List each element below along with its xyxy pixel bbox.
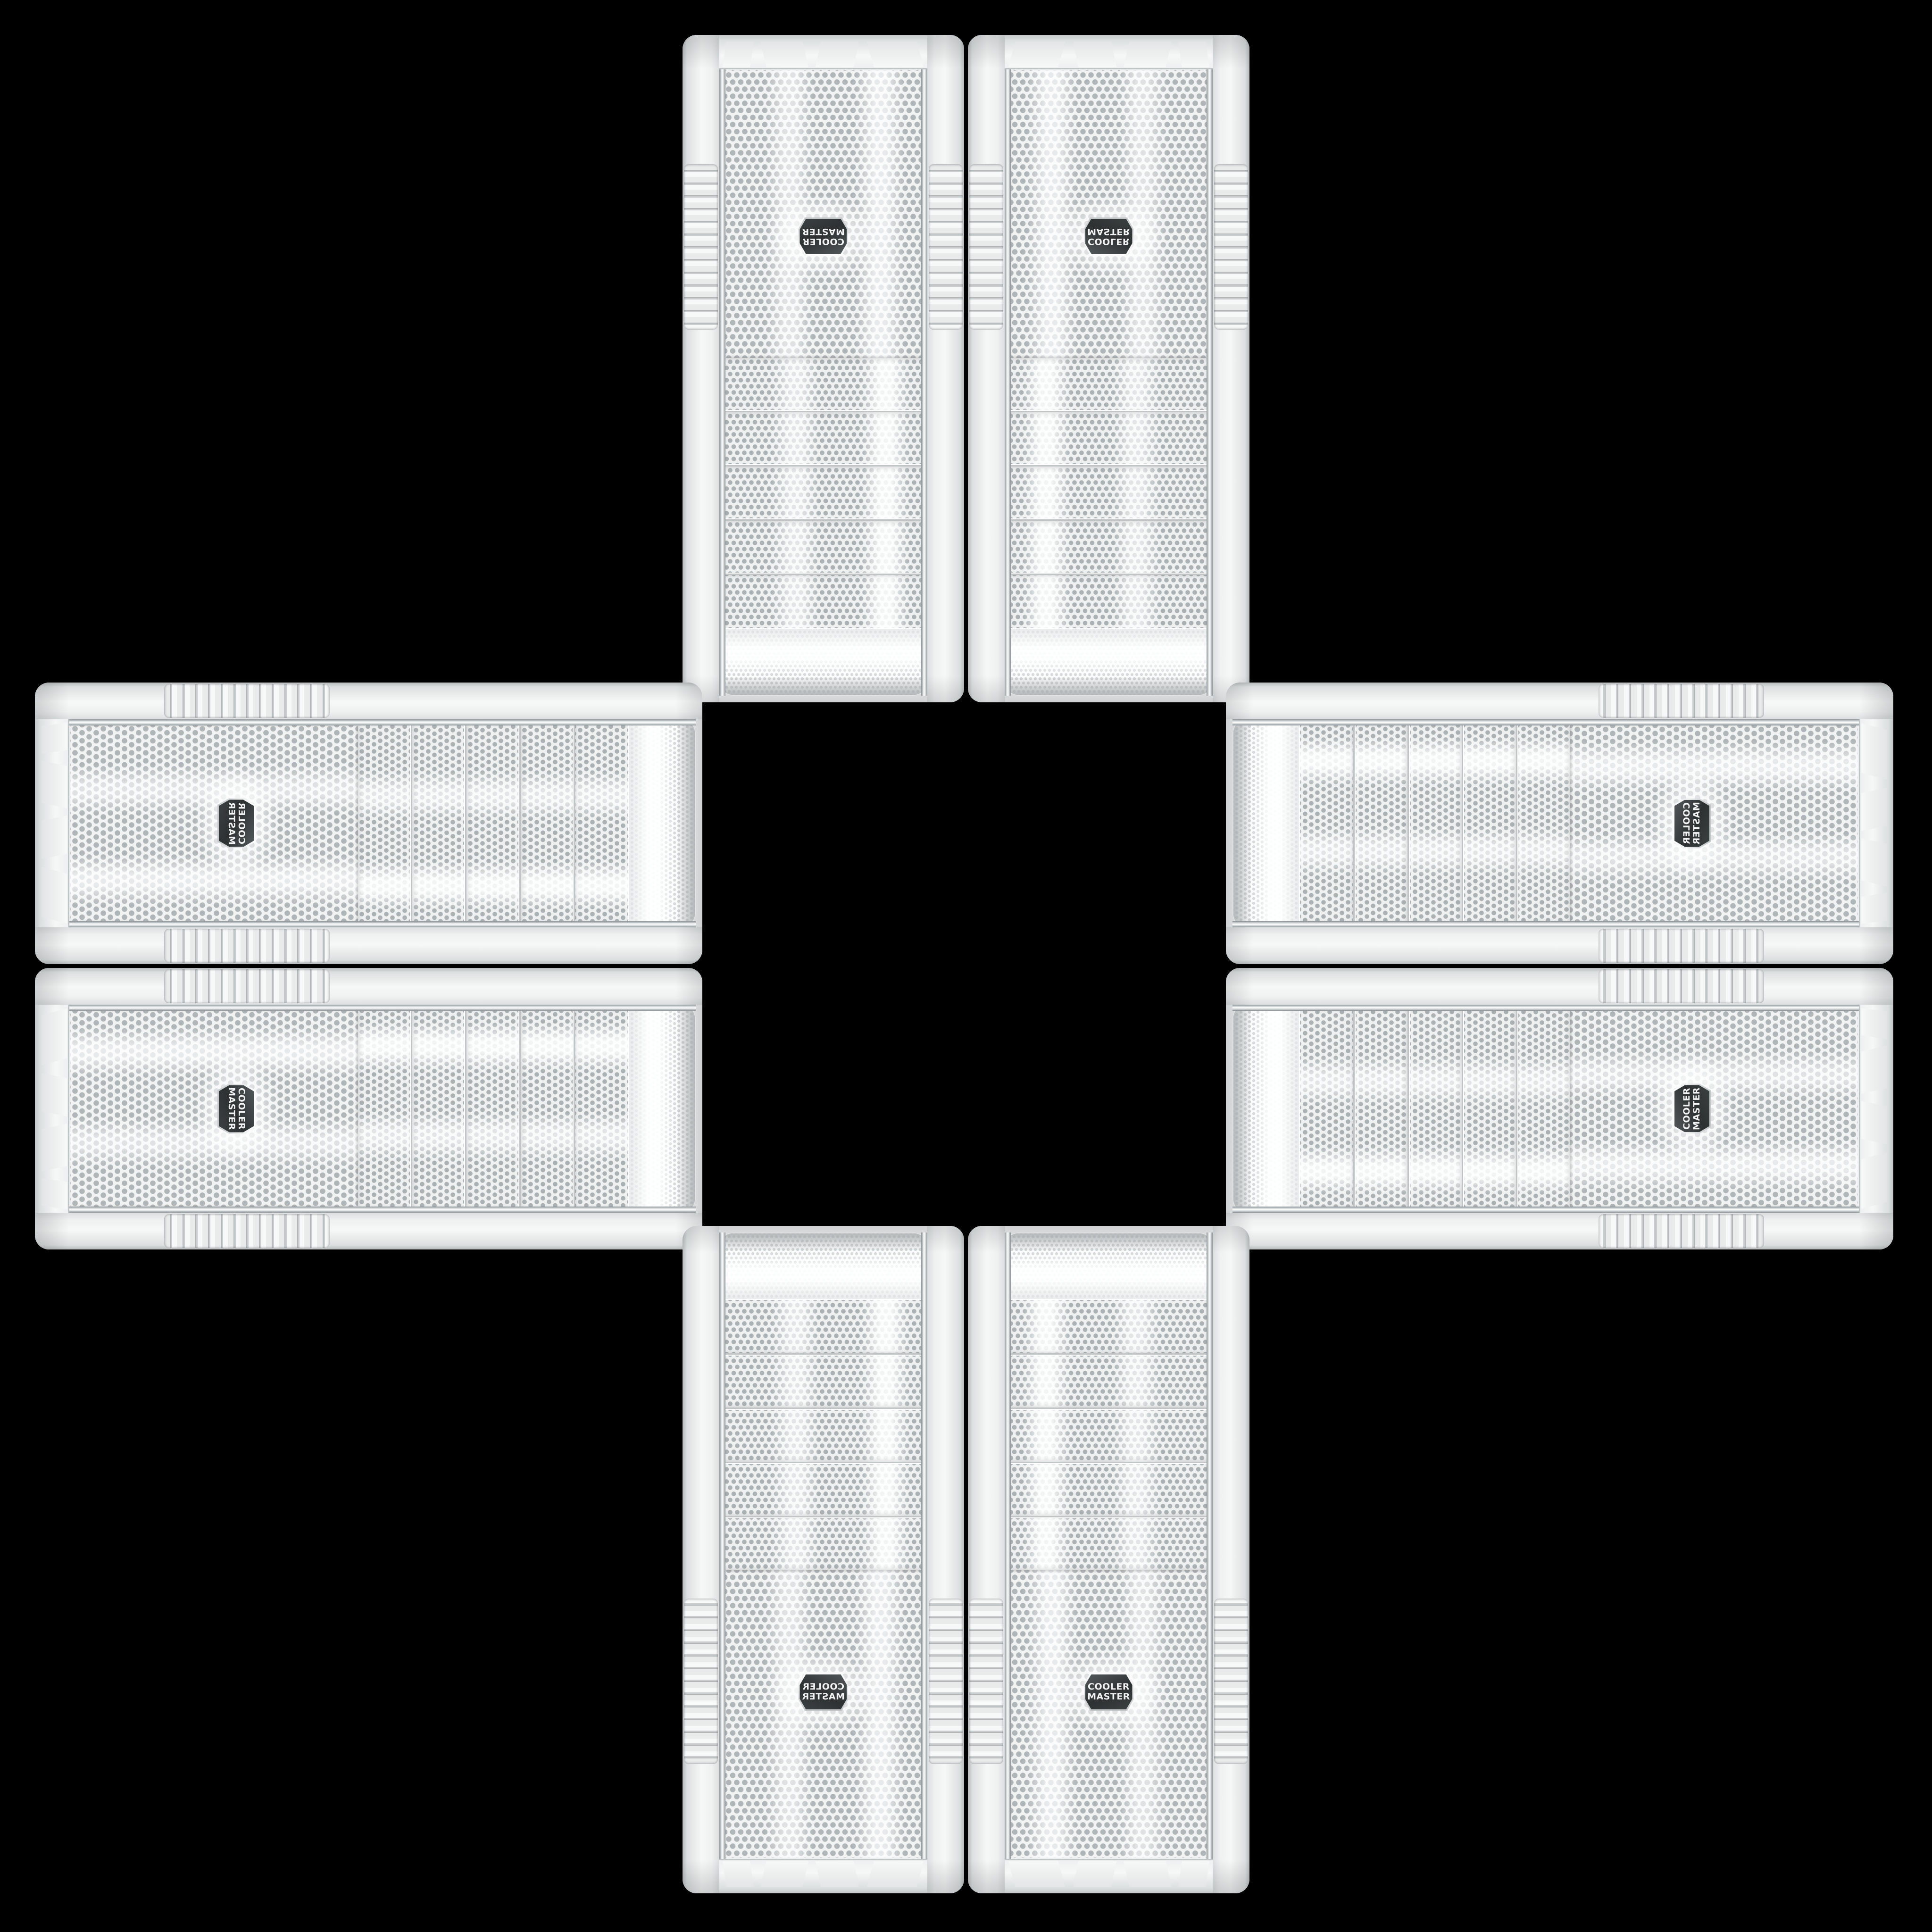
drive-bay-stack xyxy=(1299,1011,1570,1207)
grip-ribs xyxy=(1599,969,1764,1003)
drive-bay-cover xyxy=(466,725,521,921)
grip-ribs xyxy=(929,164,963,330)
pc-case-top-left: COOLER MASTER xyxy=(683,35,964,702)
grip-ribs xyxy=(684,1599,718,1764)
drive-bay-cover xyxy=(466,1011,521,1207)
chrome-trim-left xyxy=(69,921,696,927)
trim-facet xyxy=(42,867,67,924)
trim-facet xyxy=(1073,1861,1116,1887)
drive-bay-cover xyxy=(1011,575,1207,629)
trim-facet xyxy=(42,1124,67,1172)
trim-facet xyxy=(1861,723,1887,780)
cooler-master-logo-icon: COOLER MASTER xyxy=(799,1673,849,1711)
trim-facet xyxy=(723,42,754,67)
drive-bay-cover xyxy=(725,1462,921,1516)
drive-bay-cover xyxy=(1299,1011,1353,1207)
cooler-master-logo-icon: COOLER MASTER xyxy=(1673,1084,1711,1134)
drive-bay-cover xyxy=(358,1011,412,1207)
right-rail xyxy=(1226,968,1893,1005)
trim-facet xyxy=(867,42,924,67)
bottom-trim-bar xyxy=(1005,1859,1213,1893)
trim-facet xyxy=(1073,42,1116,67)
pc-case-right-lower: COOLER MASTER xyxy=(1226,968,1893,1249)
chrome-trim-right xyxy=(719,69,725,696)
trim-facet xyxy=(1861,1008,1887,1039)
right-rail xyxy=(1213,35,1249,702)
drive-bay-stack xyxy=(1011,1299,1207,1570)
bottom-trim-bar xyxy=(719,35,927,69)
left-rail xyxy=(35,968,702,1005)
cooler-master-logo-icon: COOLER MASTER xyxy=(799,217,849,255)
trim-facet xyxy=(42,723,67,754)
chrome-trim-left xyxy=(69,1005,696,1011)
front-intake-mesh: COOLER MASTER xyxy=(725,70,921,358)
drive-bay-cover xyxy=(1407,725,1462,921)
pc-case-left-upper: COOLER MASTER xyxy=(35,683,702,964)
logo-plate: COOLER MASTER xyxy=(1674,1085,1709,1133)
drive-bay-stack xyxy=(358,725,629,921)
top-vent-bezel xyxy=(1232,722,1299,925)
logo-text-line2: MASTER xyxy=(226,802,236,845)
drive-bay-cover xyxy=(1011,1407,1207,1462)
logo-text-line2: MASTER xyxy=(226,1087,236,1130)
top-vent-bezel xyxy=(1007,629,1210,696)
top-vent-bezel xyxy=(722,629,925,696)
logo-plate: COOLER MASTER xyxy=(800,219,847,254)
logo-plate: COOLER MASTER xyxy=(1085,219,1133,254)
trim-facet xyxy=(867,1861,924,1887)
front-panel: COOLER MASTER xyxy=(35,719,702,927)
drive-bay-cover xyxy=(1462,725,1516,921)
pc-case-bottom-left: COOLER MASTER xyxy=(683,1226,964,1893)
front-panel: COOLER MASTER xyxy=(35,1005,702,1213)
grip-ribs xyxy=(969,1599,1003,1764)
top-vent-bezel xyxy=(629,1007,696,1210)
grip-ribs xyxy=(684,164,718,330)
drive-bay-cover xyxy=(725,575,921,629)
drive-bay-cover xyxy=(725,1353,921,1407)
drive-bay-cover xyxy=(1011,1299,1207,1353)
left-rail xyxy=(1226,1213,1893,1249)
pc-case-left-lower: COOLER MASTER xyxy=(35,968,702,1249)
trim-facet xyxy=(1861,893,1887,924)
logo-plate: COOLER MASTER xyxy=(800,1674,847,1709)
logo-text-line1: COOLER xyxy=(236,802,246,844)
trim-facet xyxy=(1861,788,1887,831)
drive-bay-cover xyxy=(1516,725,1570,921)
pc-case-bottom-right: COOLER MASTER xyxy=(968,1226,1249,1893)
drive-bay-cover xyxy=(412,725,466,921)
cooler-master-logo-icon: COOLER MASTER xyxy=(1084,1673,1134,1711)
bottom-trim-bar xyxy=(719,1859,927,1893)
top-vent-bezel xyxy=(1007,1232,1210,1299)
pc-case-top-right: COOLER MASTER xyxy=(968,35,1249,702)
left-rail xyxy=(1226,683,1893,719)
drive-bay-cover xyxy=(725,1516,921,1570)
drive-bay-stack xyxy=(725,1299,921,1570)
right-rail xyxy=(1213,1226,1249,1893)
grip-ribs xyxy=(1599,1214,1764,1248)
chrome-trim-right xyxy=(69,719,696,725)
front-intake-mesh: COOLER MASTER xyxy=(1011,70,1207,358)
drive-bay-cover xyxy=(1011,521,1207,575)
chrome-trim-left xyxy=(921,69,927,696)
grip-ribs xyxy=(929,1599,963,1764)
drive-bay-cover xyxy=(1353,1011,1407,1207)
grip-ribs xyxy=(1599,929,1764,963)
bottom-trim-bar xyxy=(35,719,69,927)
drive-bay-cover xyxy=(1011,466,1207,521)
front-panel: COOLER MASTER xyxy=(1226,1005,1893,1213)
cooler-master-logo-icon: COOLER MASTER xyxy=(217,799,255,849)
cooler-master-logo-icon: COOLER MASTER xyxy=(1673,799,1711,849)
logo-text-line1: COOLER xyxy=(1088,236,1130,246)
top-vent-bezel xyxy=(629,722,696,925)
chrome-trim-right xyxy=(1232,1005,1859,1011)
bottom-trim-bar xyxy=(35,1005,69,1213)
bottom-trim-bar xyxy=(1005,35,1213,69)
chrome-trim-right xyxy=(1207,1232,1213,1859)
trim-facet xyxy=(816,1861,859,1887)
front-intake-mesh: COOLER MASTER xyxy=(1011,1570,1207,1858)
front-intake-mesh: COOLER MASTER xyxy=(1570,1011,1858,1207)
trim-facet xyxy=(42,1008,67,1065)
logo-text-line2: MASTER xyxy=(1692,1087,1702,1130)
trim-facet xyxy=(1861,838,1887,886)
right-rail xyxy=(683,35,719,702)
logo-plate: COOLER MASTER xyxy=(1674,800,1709,847)
drive-bay-cover xyxy=(1407,1011,1462,1207)
logo-text-line1: COOLER xyxy=(1682,802,1692,844)
front-intake-mesh: COOLER MASTER xyxy=(70,725,358,921)
trim-facet xyxy=(1178,42,1209,67)
chrome-trim-left xyxy=(1232,719,1859,725)
trim-facet xyxy=(1861,1046,1887,1094)
logo-plate: COOLER MASTER xyxy=(1085,1674,1133,1709)
chrome-trim-right xyxy=(1232,921,1859,927)
cooler-master-logo-icon: COOLER MASTER xyxy=(217,1084,255,1134)
trim-facet xyxy=(1124,1861,1172,1887)
left-rail xyxy=(968,35,1005,702)
drive-bay-cover xyxy=(1462,1011,1516,1207)
grip-ribs xyxy=(1214,1599,1248,1764)
right-rail xyxy=(683,1226,719,1893)
chrome-trim-right xyxy=(719,1232,725,1859)
left-rail xyxy=(968,1226,1005,1893)
logo-plate: COOLER MASTER xyxy=(219,1085,254,1133)
grip-ribs xyxy=(1599,684,1764,718)
drive-bay-cover xyxy=(358,725,412,921)
trim-facet xyxy=(1178,1861,1209,1887)
left-rail xyxy=(927,35,964,702)
trim-facet xyxy=(1008,42,1065,67)
front-panel: COOLER MASTER xyxy=(719,35,927,702)
front-panel: COOLER MASTER xyxy=(1005,35,1213,702)
drive-bay-cover xyxy=(1011,1353,1207,1407)
chrome-trim-left xyxy=(1005,1232,1011,1859)
front-panel: COOLER MASTER xyxy=(1226,719,1893,927)
drive-bay-cover xyxy=(1299,725,1353,921)
logo-text-line1: COOLER xyxy=(236,1088,246,1130)
front-intake-mesh: COOLER MASTER xyxy=(725,1570,921,1858)
drive-bay-cover xyxy=(1353,725,1407,921)
grip-ribs xyxy=(969,164,1003,330)
trim-facet xyxy=(760,1861,808,1887)
drive-bay-cover xyxy=(521,1011,575,1207)
grip-ribs xyxy=(164,969,330,1003)
front-panel: COOLER MASTER xyxy=(1005,1226,1213,1893)
trim-facet xyxy=(816,42,859,67)
drive-bay-cover xyxy=(1011,412,1207,466)
front-intake-mesh: COOLER MASTER xyxy=(1570,725,1858,921)
trim-facet xyxy=(1861,1152,1887,1209)
trim-facet xyxy=(1861,1101,1887,1144)
drive-bay-stack xyxy=(358,1011,629,1207)
trim-facet xyxy=(1124,42,1172,67)
cooler-master-logo-icon: COOLER MASTER xyxy=(1084,217,1134,255)
logo-text-line1: COOLER xyxy=(802,236,844,246)
collage-canvas: COOLER MASTER xyxy=(0,0,1932,1932)
grip-ribs xyxy=(164,929,330,963)
drive-bay-cover xyxy=(725,1299,921,1353)
drive-bay-cover xyxy=(1516,1011,1570,1207)
trim-facet xyxy=(42,816,67,859)
logo-text-line2: MASTER xyxy=(802,1692,845,1702)
top-vent-bezel xyxy=(1232,1007,1299,1210)
drive-bay-cover xyxy=(575,1011,629,1207)
front-intake-mesh: COOLER MASTER xyxy=(70,1011,358,1207)
trim-facet xyxy=(42,1178,67,1209)
bottom-trim-bar xyxy=(1859,1005,1893,1213)
drive-bay-cover xyxy=(725,521,921,575)
logo-plate: COOLER MASTER xyxy=(219,800,254,847)
drive-bay-cover xyxy=(725,358,921,412)
chrome-trim-left xyxy=(1005,69,1011,696)
left-rail xyxy=(927,1226,964,1893)
grip-ribs xyxy=(1214,164,1248,330)
drive-bay-stack xyxy=(725,358,921,629)
drive-bay-cover xyxy=(725,1407,921,1462)
logo-text-line1: COOLER xyxy=(1088,1682,1130,1692)
logo-text-line2: MASTER xyxy=(1087,1692,1130,1702)
top-vent-bezel xyxy=(722,1232,925,1299)
left-rail xyxy=(35,927,702,964)
drive-bay-stack xyxy=(1299,725,1570,921)
logo-text-line2: MASTER xyxy=(1692,802,1702,845)
chrome-trim-right xyxy=(69,1207,696,1213)
right-rail xyxy=(35,683,702,719)
logo-text-line2: MASTER xyxy=(1087,226,1130,236)
grip-ribs xyxy=(164,684,330,718)
trim-facet xyxy=(760,42,808,67)
logo-text-line2: MASTER xyxy=(802,226,845,236)
bottom-trim-bar xyxy=(1859,719,1893,927)
chrome-trim-left xyxy=(1232,1207,1859,1213)
drive-bay-cover xyxy=(725,412,921,466)
drive-bay-cover xyxy=(412,1011,466,1207)
drive-bay-cover xyxy=(1011,358,1207,412)
trim-facet xyxy=(1008,1861,1065,1887)
drive-bay-stack xyxy=(1011,358,1207,629)
chrome-trim-left xyxy=(921,1232,927,1859)
drive-bay-cover xyxy=(521,725,575,921)
pc-case-right-upper: COOLER MASTER xyxy=(1226,683,1893,964)
drive-bay-cover xyxy=(575,725,629,921)
right-rail xyxy=(1226,927,1893,964)
grip-ribs xyxy=(164,1214,330,1248)
drive-bay-cover xyxy=(1011,1516,1207,1570)
chrome-trim-right xyxy=(1207,69,1213,696)
drive-bay-cover xyxy=(1011,1462,1207,1516)
trim-facet xyxy=(42,1073,67,1116)
trim-facet xyxy=(42,760,67,808)
logo-text-line1: COOLER xyxy=(802,1682,844,1692)
front-panel: COOLER MASTER xyxy=(719,1226,927,1893)
trim-facet xyxy=(723,1861,754,1887)
drive-bay-cover xyxy=(725,466,921,521)
logo-text-line1: COOLER xyxy=(1682,1088,1692,1130)
right-rail xyxy=(35,1213,702,1249)
